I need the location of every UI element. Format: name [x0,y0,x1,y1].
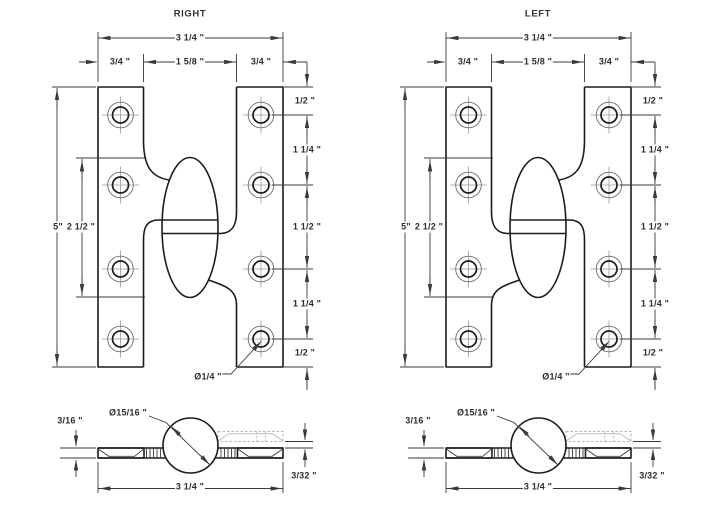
knuckle-ellipse [510,158,566,298]
dim-leaf-width-right-label: 3/4 " [250,57,272,68]
lower-arm-path [492,280,520,367]
dim-bottom-width-label: 3 1/4 " [523,482,553,493]
knuckle-front-view-right [144,87,237,367]
dim-bottom-width-label: 3 1/4 " [175,482,205,493]
dim-height-label: 5" [52,222,64,233]
dim-edge-offset-bottom-label: 1/2 " [294,348,316,359]
dim-knuckle-gap-label: 1 5/8 " [175,57,205,68]
dim-overall-width-label: 3 1/4 " [175,33,205,44]
dim-hole-pitch-1-label: 1 1/4 " [292,145,322,156]
dim-leaf-width-right-label: 3/4 " [598,57,620,68]
lower-seam-path [492,87,566,234]
dim-edge-offset-top-label: 1/2 " [642,96,664,107]
knuckle-front-view-left [492,87,585,367]
dim-leaf-thickness-label: 3/16 " [56,416,83,427]
dim-hole-pitch-3-label: 1 1/4 " [640,299,670,310]
lower-seam-path [162,87,236,234]
dim-hole-pitch-2-label: 1 1/2 " [640,222,670,233]
technical-drawing-right [0,0,372,505]
dim-knuckle-length-label: 2 1/2 " [414,222,444,233]
dim-overall-width-label: 3 1/4 " [523,33,553,44]
dim-leaf-thickness-label: 3/16 " [404,416,431,427]
upper-arm-path [144,87,170,180]
dim-screw-hole-dia-label: Ø1/4 " [193,372,222,383]
dim-edge-offset-top-label: 1/2 " [294,96,316,107]
technical-drawing-left [348,0,720,505]
dim-knuckle-length-label: 2 1/2 " [66,222,96,233]
upper-arm-path [559,87,585,180]
lower-arm-path [209,280,237,367]
drawing-left-hand: LEFT 3 1/4 " 3/4 " 1 5/8 " 3/4 " 5" 2 1/… [348,0,720,505]
drawing-right-hand: RIGHT 3 1/4 " 3/4 " 1 5/8 " 3/4 " 5" 2 1… [0,0,372,505]
dim-leaf-clearance-label: 3/32 " [638,471,665,482]
dim-screw-hole-dia-label: Ø1/4 " [541,372,570,383]
dim-knuckle-dia-label: Ø15/16 " [456,408,496,419]
dim-knuckle-gap-label: 1 5/8 " [523,57,553,68]
dim-hole-pitch-3-label: 1 1/4 " [292,299,322,310]
knuckle-ellipse [162,158,218,298]
dim-knuckle-dia-label: Ø15/16 " [108,408,148,419]
dim-hole-pitch-2-label: 1 1/2 " [292,222,322,233]
dim-leaf-width-left-label: 3/4 " [109,57,131,68]
drawing-title: LEFT [524,9,552,20]
hinge-spec-sheet: RIGHT 3 1/4 " 3/4 " 1 5/8 " 3/4 " 5" 2 1… [0,0,720,505]
dim-hole-pitch-1-label: 1 1/4 " [640,145,670,156]
dim-height-label: 5" [400,222,412,233]
dim-leaf-clearance-label: 3/32 " [290,471,317,482]
drawing-title: RIGHT [173,9,208,20]
dim-edge-offset-bottom-label: 1/2 " [642,348,664,359]
dim-leaf-width-left-label: 3/4 " [457,57,479,68]
